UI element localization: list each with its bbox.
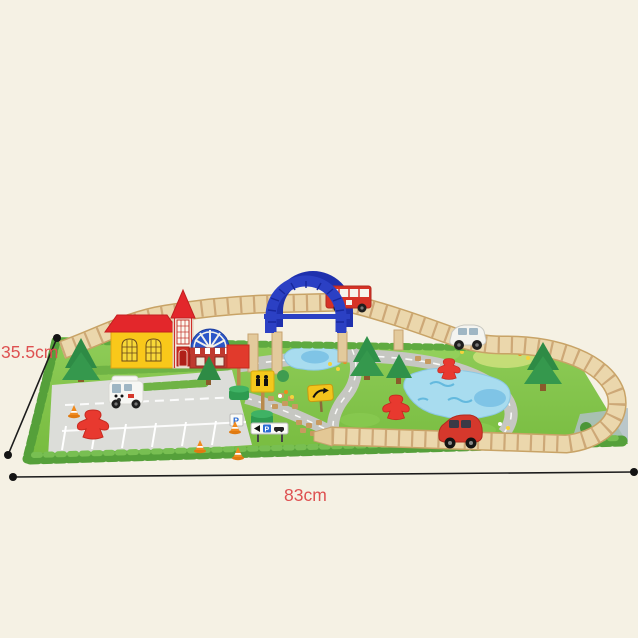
track-riser bbox=[272, 332, 282, 374]
product-photo: P P bbox=[0, 0, 638, 638]
yellow-house bbox=[105, 315, 179, 368]
pond-small bbox=[284, 346, 342, 370]
direction-sign-letter: P bbox=[265, 427, 270, 434]
hedge-row bbox=[145, 383, 206, 387]
width-label: 83cm bbox=[284, 485, 327, 505]
depth-label: 35.5cm bbox=[1, 342, 58, 362]
white-van bbox=[109, 376, 143, 409]
dimension-endpoint-dot bbox=[9, 473, 17, 481]
bush bbox=[277, 370, 289, 382]
track-riser bbox=[394, 330, 403, 350]
track-riser bbox=[338, 332, 347, 362]
dimension-endpoint-dot bbox=[53, 334, 61, 342]
toy-train-set-scene: P P bbox=[0, 0, 638, 638]
dimension-endpoint-dot bbox=[4, 451, 12, 459]
dimension-endpoint-dot bbox=[630, 468, 638, 476]
